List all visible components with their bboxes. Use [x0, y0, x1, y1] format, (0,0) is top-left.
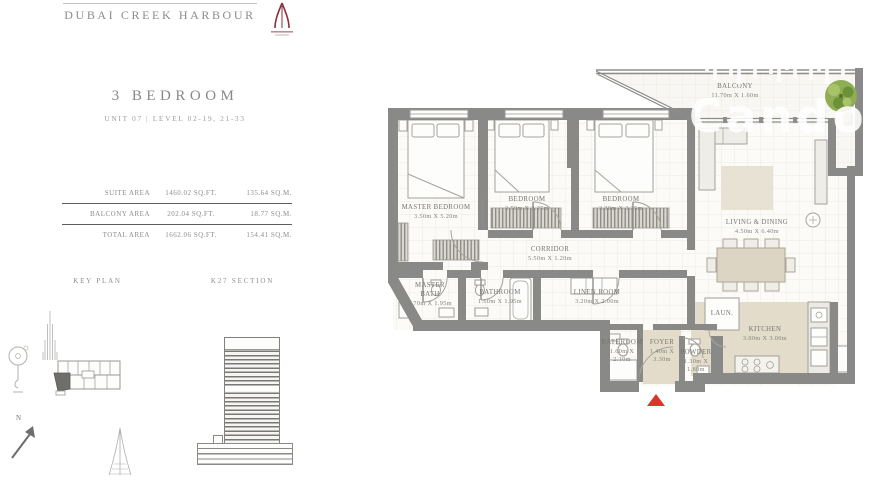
area-sqm: 18.77 SQ.M.	[226, 210, 292, 218]
table-row: BALCONY AREA 202.04 SQ.FT. 18.77 SQ.M.	[62, 204, 292, 225]
room-label-foyer: FOYER 1.40m X 3.30m	[642, 339, 682, 364]
header-rule	[63, 3, 257, 4]
north-arrow-icon	[6, 422, 40, 467]
windows	[410, 110, 669, 118]
area-label: TOTAL AREA	[62, 231, 156, 239]
watermark-bars	[705, 54, 845, 84]
dubai-creek-harbour-logo-icon	[262, 0, 302, 45]
area-sqm: 135.64 SQ.M.	[226, 189, 292, 197]
key-plan-label: KEY PLAN	[40, 277, 155, 285]
floor-plan: MASTER BEDROOM 3.50m X 5.20m BEDROOM 3.5…	[383, 58, 875, 486]
room-label-laundry: LAUN.	[702, 310, 742, 319]
room-label-master-bedroom: MASTER BEDROOM 3.50m X 5.20m	[391, 204, 481, 221]
table-row: TOTAL AREA 1662.06 SQ.FT. 154.41 SQ.M.	[62, 225, 292, 245]
area-sqft: 1662.06 SQ.FT.	[156, 231, 226, 239]
room-label-powder: POWDER 1.30m X 1.80m	[679, 349, 713, 374]
unit-subtitle: UNIT 07 | LEVEL 02-19, 21-33	[60, 114, 290, 123]
creek-tower-sketch-icon	[108, 428, 132, 481]
burj-sketch-icon	[42, 310, 58, 365]
bedroom-furniture	[399, 120, 662, 198]
north-label: N	[16, 414, 22, 422]
room-label-bedroom-2: BEDROOM 3.50m X 3.25m	[487, 196, 567, 213]
wheel-sketch-icon	[6, 342, 32, 401]
brand-title: DUBAI CREEK HARBOUR	[60, 8, 260, 23]
area-sqft: 202.04 SQ.FT.	[156, 210, 226, 218]
table-row: SUITE AREA 1460.02 SQ.FT. 135.64 SQ.M.	[62, 183, 292, 204]
room-label-bedroom-3: BEDROOM 3.30m X 3.25m	[581, 196, 661, 213]
area-sqft: 1460.02 SQ.FT.	[156, 189, 226, 197]
key-section-tower-cap	[225, 338, 279, 350]
key-section-podium	[197, 443, 293, 465]
room-label-linen-room: LINEN ROOM 3.20m X 2.00m	[557, 289, 637, 306]
area-sqm: 154.41 SQ.M.	[226, 231, 292, 239]
room-label-bathroom: BATHROOM 1.60m X 1.95m	[471, 289, 529, 306]
key-section-label: K27 SECTION	[185, 277, 300, 285]
area-table: SUITE AREA 1460.02 SQ.FT. 135.64 SQ.M. B…	[62, 183, 292, 245]
room-label-corridor: CORRIDOR 5.50m X 1.20m	[510, 246, 590, 263]
unit-type-title: 3 BEDROOM	[60, 88, 290, 105]
room-label-master-bath: MASTER BATH 2.70m X 1.95m	[401, 282, 459, 308]
key-plan-footprint	[52, 358, 128, 403]
area-label: BALCONY AREA	[62, 210, 156, 218]
area-label: SUITE AREA	[62, 189, 156, 197]
room-label-kitchen: KITCHEN 3.00m X 3.00m	[725, 326, 805, 343]
room-label-living-dining: LIVING & DINING 4.50m X 6.40m	[717, 219, 797, 236]
key-section-tower	[224, 337, 280, 447]
entry-arrow	[647, 394, 665, 406]
watermark-text: Cando	[689, 90, 868, 143]
key-section-highlight-band	[225, 386, 279, 391]
room-label-bathroom-2: BATHROOM 1.60m X 2.10m	[600, 339, 644, 364]
brochure-page: DUBAI CREEK HARBOUR 3 BEDROOM UNIT 07 | …	[0, 0, 890, 500]
